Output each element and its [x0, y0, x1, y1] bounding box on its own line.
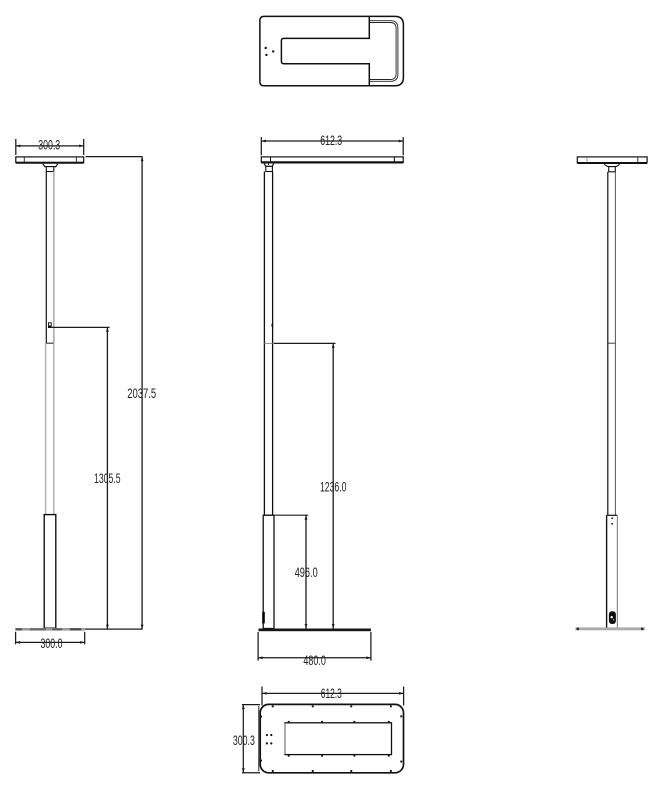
svg-text:300.3: 300.3 [38, 138, 60, 153]
svg-text:300.3: 300.3 [233, 733, 255, 748]
svg-text:480.0: 480.0 [303, 653, 326, 668]
svg-text:300.0: 300.0 [41, 636, 63, 651]
svg-text:496.0: 496.0 [295, 565, 318, 580]
svg-text:612.3: 612.3 [321, 686, 342, 701]
svg-text:2037.5: 2037.5 [127, 386, 156, 401]
svg-text:1236.0: 1236.0 [320, 479, 347, 494]
svg-text:1305.5: 1305.5 [94, 471, 121, 486]
svg-text:612.3: 612.3 [320, 133, 342, 148]
